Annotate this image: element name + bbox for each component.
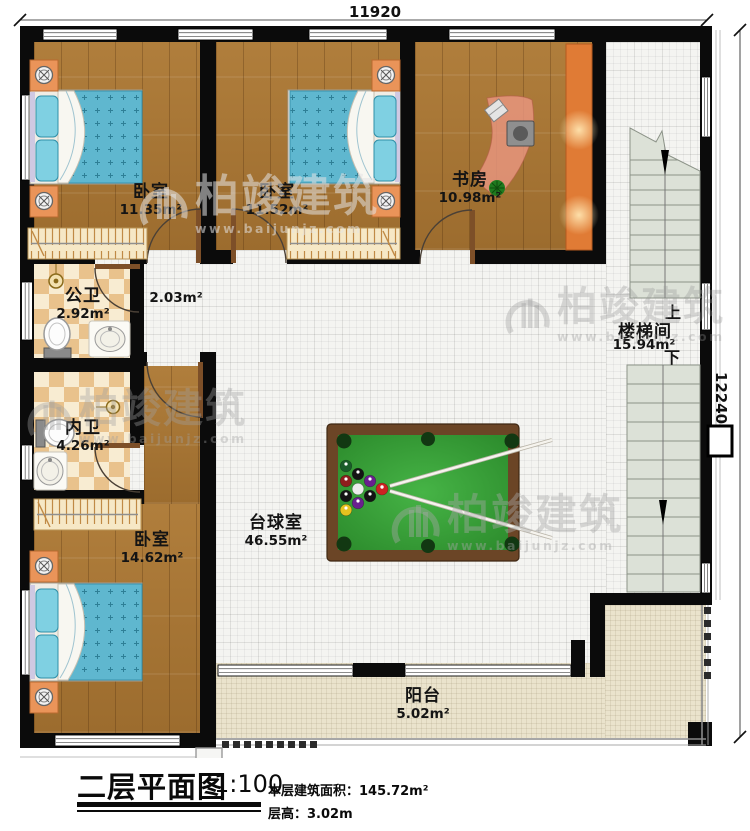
pillow xyxy=(374,96,396,137)
room-name: 书房 xyxy=(420,171,520,190)
room-area: 5.02m² xyxy=(373,706,473,723)
room-name: 卧室 xyxy=(227,183,327,202)
room-label-study: 书房 10.98m² xyxy=(420,171,520,207)
pillow xyxy=(374,140,396,181)
room-label-hallway-area: 2.03m² xyxy=(136,290,216,306)
room-label-billiard-room: 台球室 46.55m² xyxy=(226,514,326,550)
room-label-bedroom-top-mid: 卧室 11.52m² xyxy=(227,183,327,219)
room-area: 46.55m² xyxy=(226,533,326,550)
balcony-railing xyxy=(196,605,711,765)
title-underline-thin xyxy=(77,810,261,812)
room-name: 内卫 xyxy=(43,419,123,438)
room-area: 11.35m² xyxy=(101,202,201,219)
pillow xyxy=(36,589,58,632)
stair-up-label: 上 xyxy=(662,299,684,323)
room-name: 公卫 xyxy=(43,287,123,306)
railing-posts xyxy=(222,607,711,748)
room-name: 台球室 xyxy=(226,514,326,533)
room-label-balcony: 阳台 5.02m² xyxy=(373,687,473,723)
floor-height-note: 层高：3.02m xyxy=(268,803,353,822)
title-block: 二层平面图 1:100 本层建筑面积：145.72m² 层高：3.02m xyxy=(0,758,750,831)
door-panel-study xyxy=(470,210,475,264)
sink-icon xyxy=(34,452,67,490)
room-area: 10.98m² xyxy=(420,190,520,207)
room-area: 14.62m² xyxy=(102,550,202,567)
door-arc-bedroom-bottom-left xyxy=(147,362,202,417)
wall-niche xyxy=(708,426,732,456)
door-arc-study xyxy=(420,210,472,264)
floor-area-note: 本层建筑面积：145.72m² xyxy=(268,780,428,799)
bed-top-left xyxy=(30,90,142,184)
room-area: 2.92m² xyxy=(43,306,123,323)
room-area: 11.52m² xyxy=(227,202,327,219)
room-name: 卧室 xyxy=(101,183,201,202)
floor-plan: 卧室 11.35m² 卧室 11.52m² 书房 10.98m² 2.03m² … xyxy=(0,0,750,831)
room-label-public-bathroom: 公卫 2.92m² xyxy=(43,287,123,323)
stair-down-label: 下 xyxy=(661,344,683,368)
pool-table xyxy=(327,424,552,561)
room-name: 卧室 xyxy=(102,531,202,550)
pillow xyxy=(36,635,58,678)
title-underline-thick xyxy=(77,802,261,807)
room-label-bedroom-bottom-left: 卧室 14.62m² xyxy=(102,531,202,567)
room-area: 4.26m² xyxy=(43,438,123,455)
bed-top-mid xyxy=(288,90,400,184)
room-name: 阳台 xyxy=(373,687,473,706)
door-panel-public-bathroom xyxy=(95,264,140,269)
toilet-icon xyxy=(44,318,71,358)
pillow xyxy=(36,96,58,137)
dimension-top: 11920 xyxy=(330,3,420,21)
study-furniture xyxy=(476,44,599,250)
plan-title: 二层平面图 xyxy=(77,764,227,806)
sink-icon xyxy=(89,321,130,357)
room-label-inner-bathroom: 内卫 4.26m² xyxy=(43,419,123,455)
door-panel-bedroom-bottom-left xyxy=(198,362,203,418)
bed-bottom-left xyxy=(30,583,142,681)
room-label-bedroom-top-left: 卧室 11.35m² xyxy=(101,183,201,219)
pillow xyxy=(36,140,58,181)
dimension-right: 12240 xyxy=(712,368,730,428)
